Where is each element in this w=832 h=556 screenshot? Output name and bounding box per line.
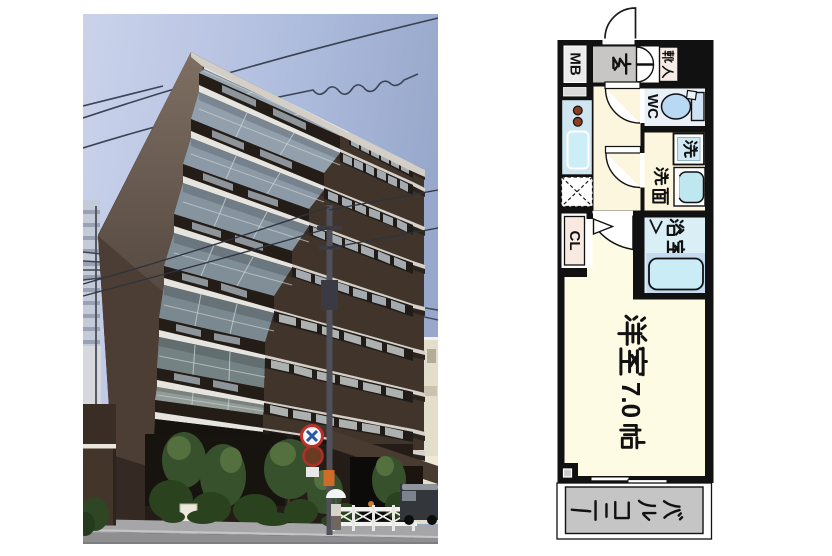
svg-text:7.0: 7.0 xyxy=(616,382,646,418)
svg-text:WC: WC xyxy=(644,94,661,119)
svg-text:CL: CL xyxy=(566,231,583,251)
svg-text:MB: MB xyxy=(567,52,584,75)
